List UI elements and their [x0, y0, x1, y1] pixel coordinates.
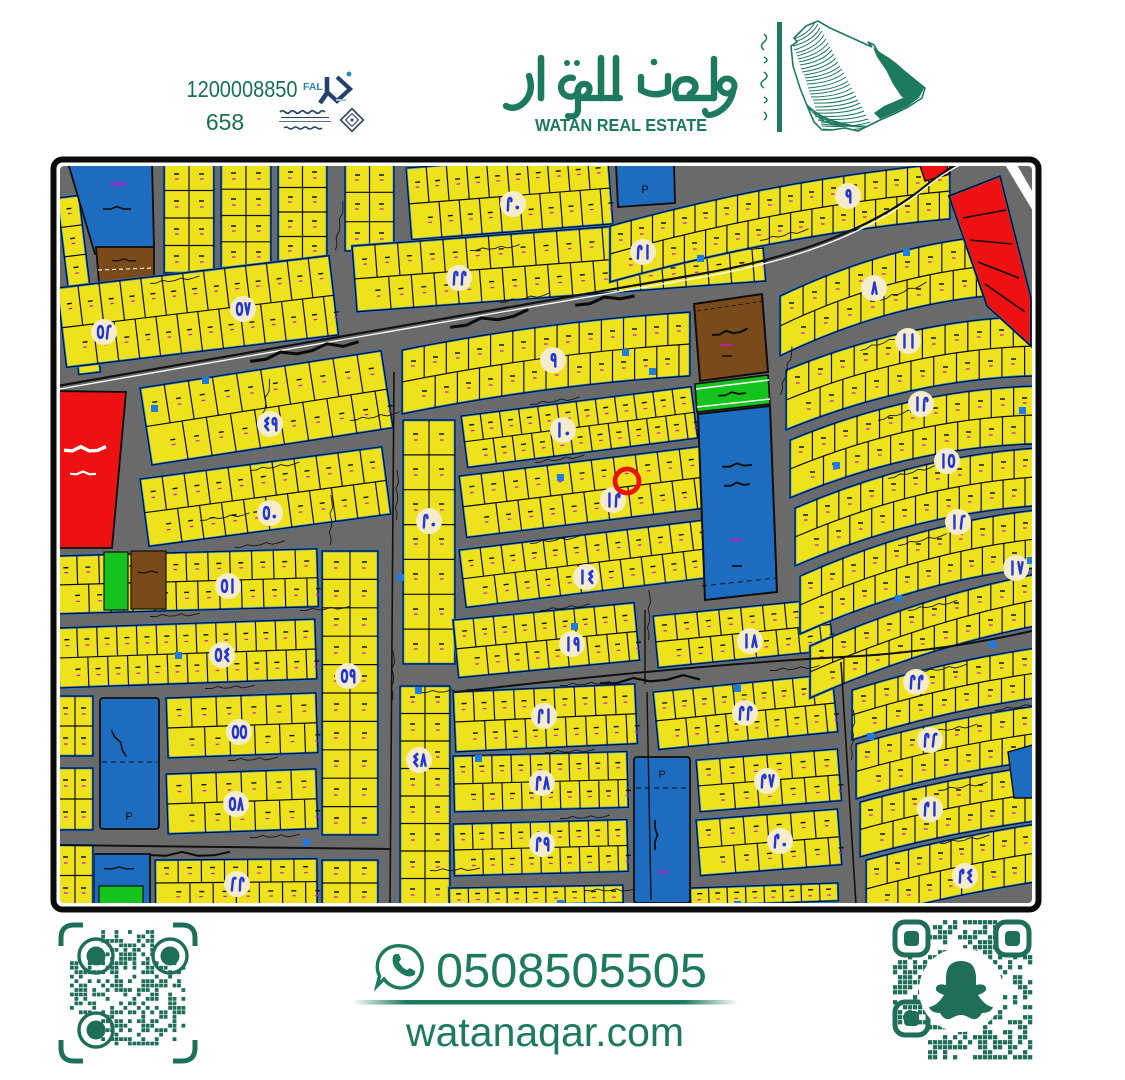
svg-text:P: P: [641, 184, 648, 196]
svg-text:P: P: [658, 769, 665, 781]
svg-text:0508505505: 0508505505: [436, 945, 707, 998]
svg-text:watanaqar.com: watanaqar.com: [405, 1009, 684, 1055]
svg-text:P: P: [125, 811, 132, 823]
